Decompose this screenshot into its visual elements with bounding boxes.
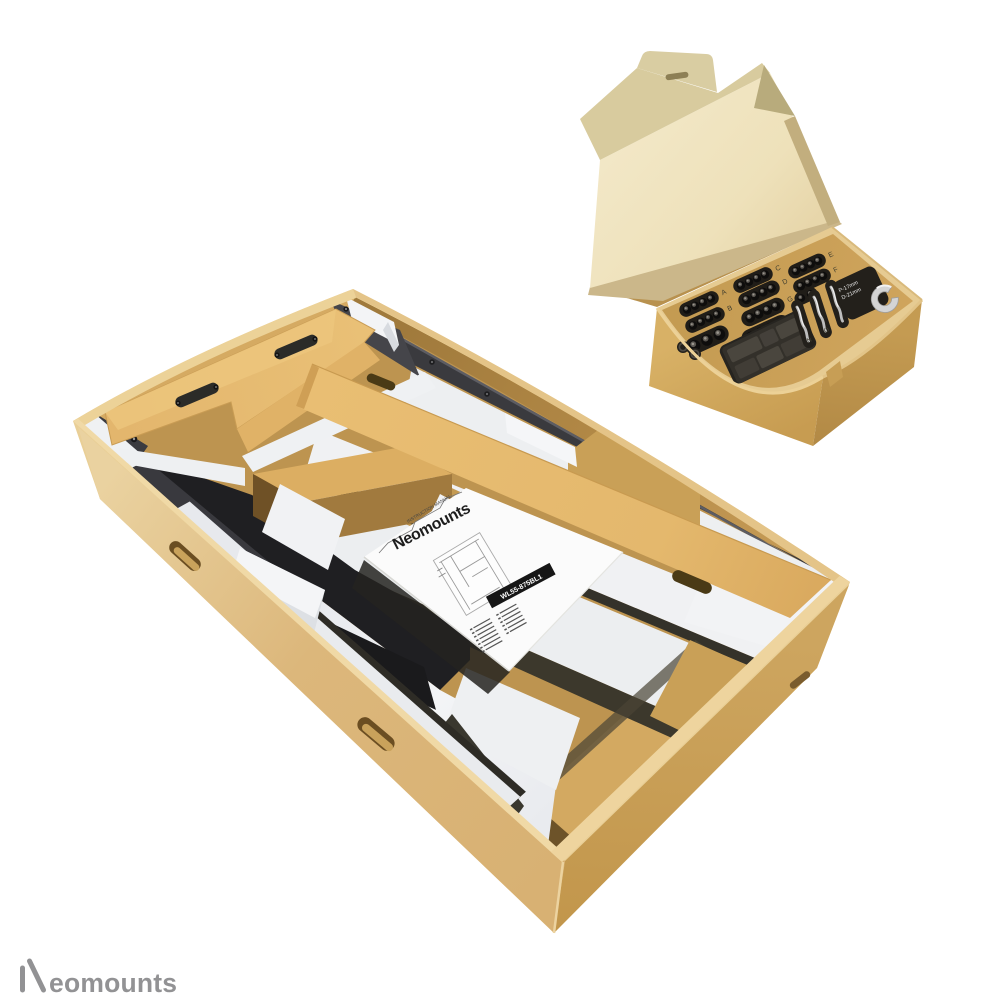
svg-text:eomounts: eomounts [49,968,177,998]
